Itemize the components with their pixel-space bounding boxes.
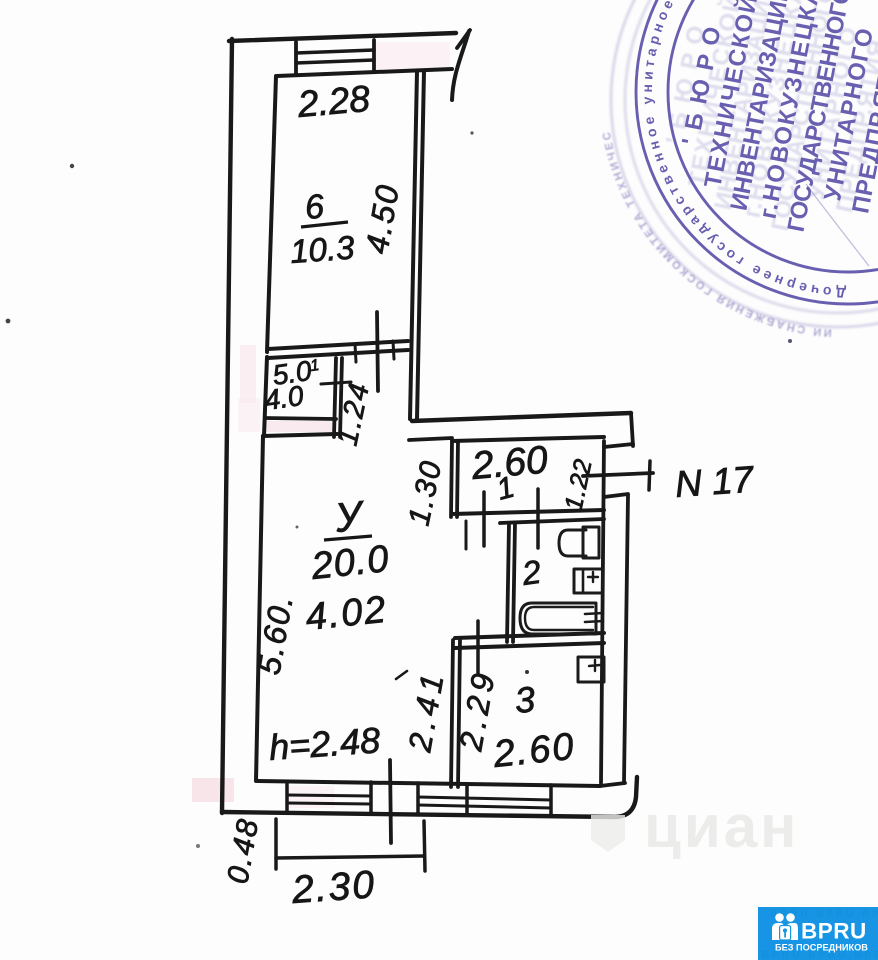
svg-text:BPRU: BPRU — [801, 919, 867, 944]
svg-text:10.3: 10.3 — [289, 229, 356, 270]
svg-text:3: 3 — [513, 678, 537, 721]
svg-text:20.0: 20.0 — [309, 538, 392, 588]
svg-text:h=2.48: h=2.48 — [268, 719, 382, 768]
svg-text:циан: циан — [644, 793, 799, 860]
svg-text:6: 6 — [303, 187, 325, 227]
svg-text:2.30: 2.30 — [290, 863, 378, 912]
svg-text:N 17: N 17 — [674, 459, 756, 505]
svg-text:БЕЗ ПОСРЕДНИКОВ: БЕЗ ПОСРЕДНИКОВ — [775, 943, 868, 953]
svg-text:2.28: 2.28 — [295, 78, 372, 125]
svg-text:4.02: 4.02 — [304, 589, 390, 639]
svg-text:2.60: 2.60 — [491, 726, 578, 776]
svg-text:4.0: 4.0 — [263, 380, 306, 416]
